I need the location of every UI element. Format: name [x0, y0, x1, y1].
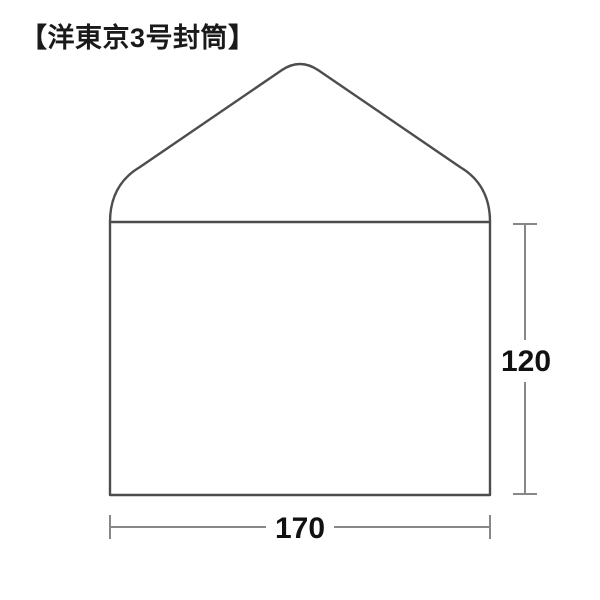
page: 【洋東京3号封筒】 120 170 — [0, 0, 600, 600]
envelope-body-outline — [110, 222, 490, 495]
envelope-flap-outline — [110, 64, 490, 222]
height-dimension-label: 120 — [501, 345, 551, 378]
width-dimension-label: 170 — [275, 512, 325, 545]
envelope-outline — [110, 64, 490, 495]
envelope-diagram: 120 170 — [0, 0, 600, 600]
